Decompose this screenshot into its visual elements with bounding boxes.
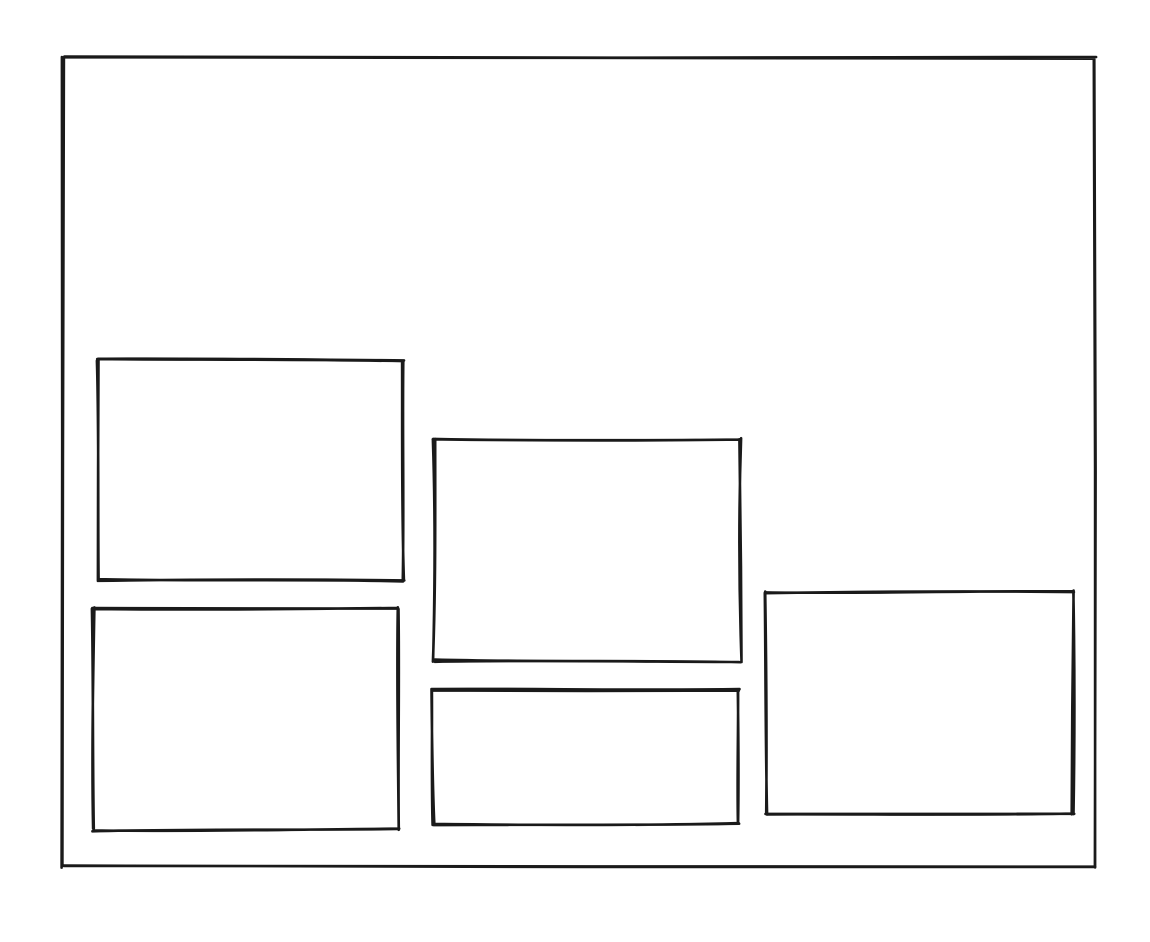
box-right xyxy=(765,591,1075,815)
outer-frame xyxy=(62,57,1097,868)
box-center-short xyxy=(432,689,740,825)
box-bottom-left xyxy=(92,607,399,831)
box-top-left xyxy=(97,359,404,582)
sketch-page xyxy=(0,0,1150,942)
sketch-canvas xyxy=(0,0,1150,942)
box-center-tall xyxy=(433,438,742,662)
